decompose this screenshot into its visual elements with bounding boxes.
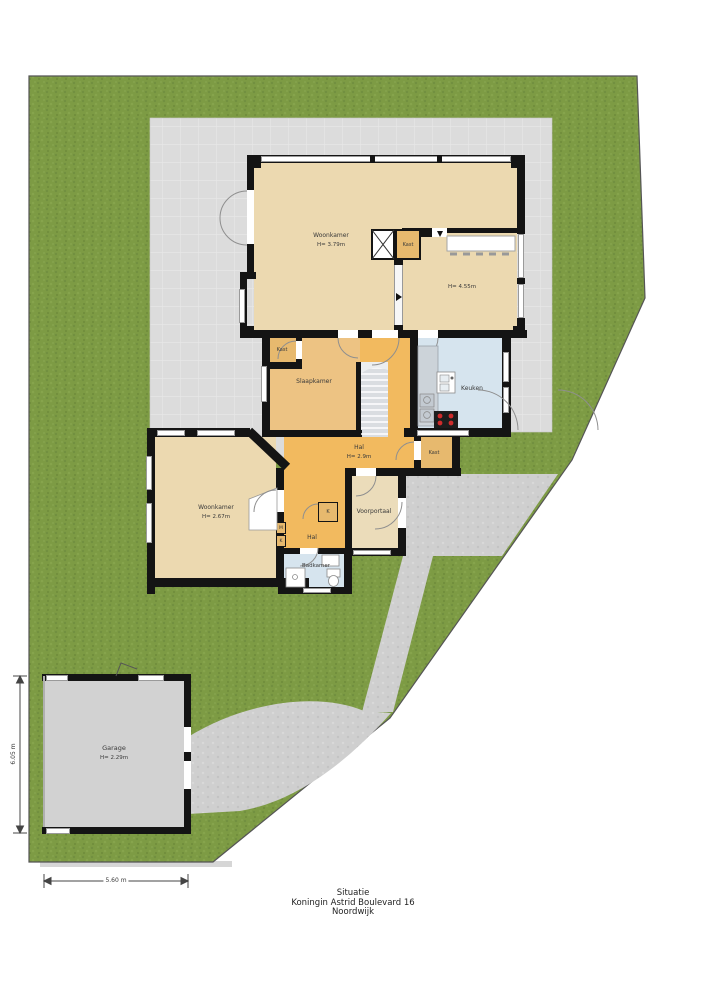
appliance-icon <box>420 409 434 422</box>
plan-label: Slaapkamer <box>296 379 332 385</box>
wall-diagonal <box>249 431 287 467</box>
plan-label: Keuken <box>461 386 483 392</box>
plan-label: 5.60 m <box>103 878 128 884</box>
appliance-icon <box>420 394 434 407</box>
plan-detail-layer <box>0 0 707 1000</box>
plan-label: Garage <box>102 745 126 752</box>
plan-label: M <box>279 526 283 531</box>
kitchen-fixtures <box>418 346 458 428</box>
plan-label: Hal <box>354 445 364 451</box>
arrow-icon <box>437 231 443 237</box>
plan-label: H= 3.79m <box>317 241 345 247</box>
plan-label: Badkamer <box>302 562 330 568</box>
plan-label: Woonkamer <box>198 505 234 511</box>
bar-counter <box>447 236 515 251</box>
stair-treads <box>361 368 388 434</box>
arrow-icon <box>396 293 402 301</box>
plan-label: Voorportaal <box>357 509 392 515</box>
plan-label: Kast <box>277 348 288 353</box>
plan-label: H= 2.67m <box>202 513 230 519</box>
plan-label: K <box>326 510 329 515</box>
shower-icon <box>286 568 305 587</box>
plan-city: Noordwijk <box>291 908 414 918</box>
plan-label: Kast <box>429 451 440 456</box>
plan-label: H= 2.9m <box>347 453 372 459</box>
plan-label: K <box>280 539 283 544</box>
plan-label: Woonkamer <box>313 233 349 239</box>
plan-label: Hal <box>307 535 317 541</box>
plan-label: H= 4.55m <box>448 283 476 289</box>
stove-icon <box>434 411 458 428</box>
plan-label: 6.05 m <box>11 741 17 766</box>
title-block: Situatie Koningin Astrid Boulevard 16 No… <box>291 889 414 918</box>
plan-label: H= 2.29m <box>100 754 128 760</box>
plan-label: Kast <box>403 243 414 248</box>
shaft-x-icon <box>372 230 394 259</box>
floor-plan: Situatie Koningin Astrid Boulevard 16 No… <box>0 0 707 1000</box>
dimension-lines <box>13 676 188 888</box>
roof-mark <box>116 663 137 676</box>
